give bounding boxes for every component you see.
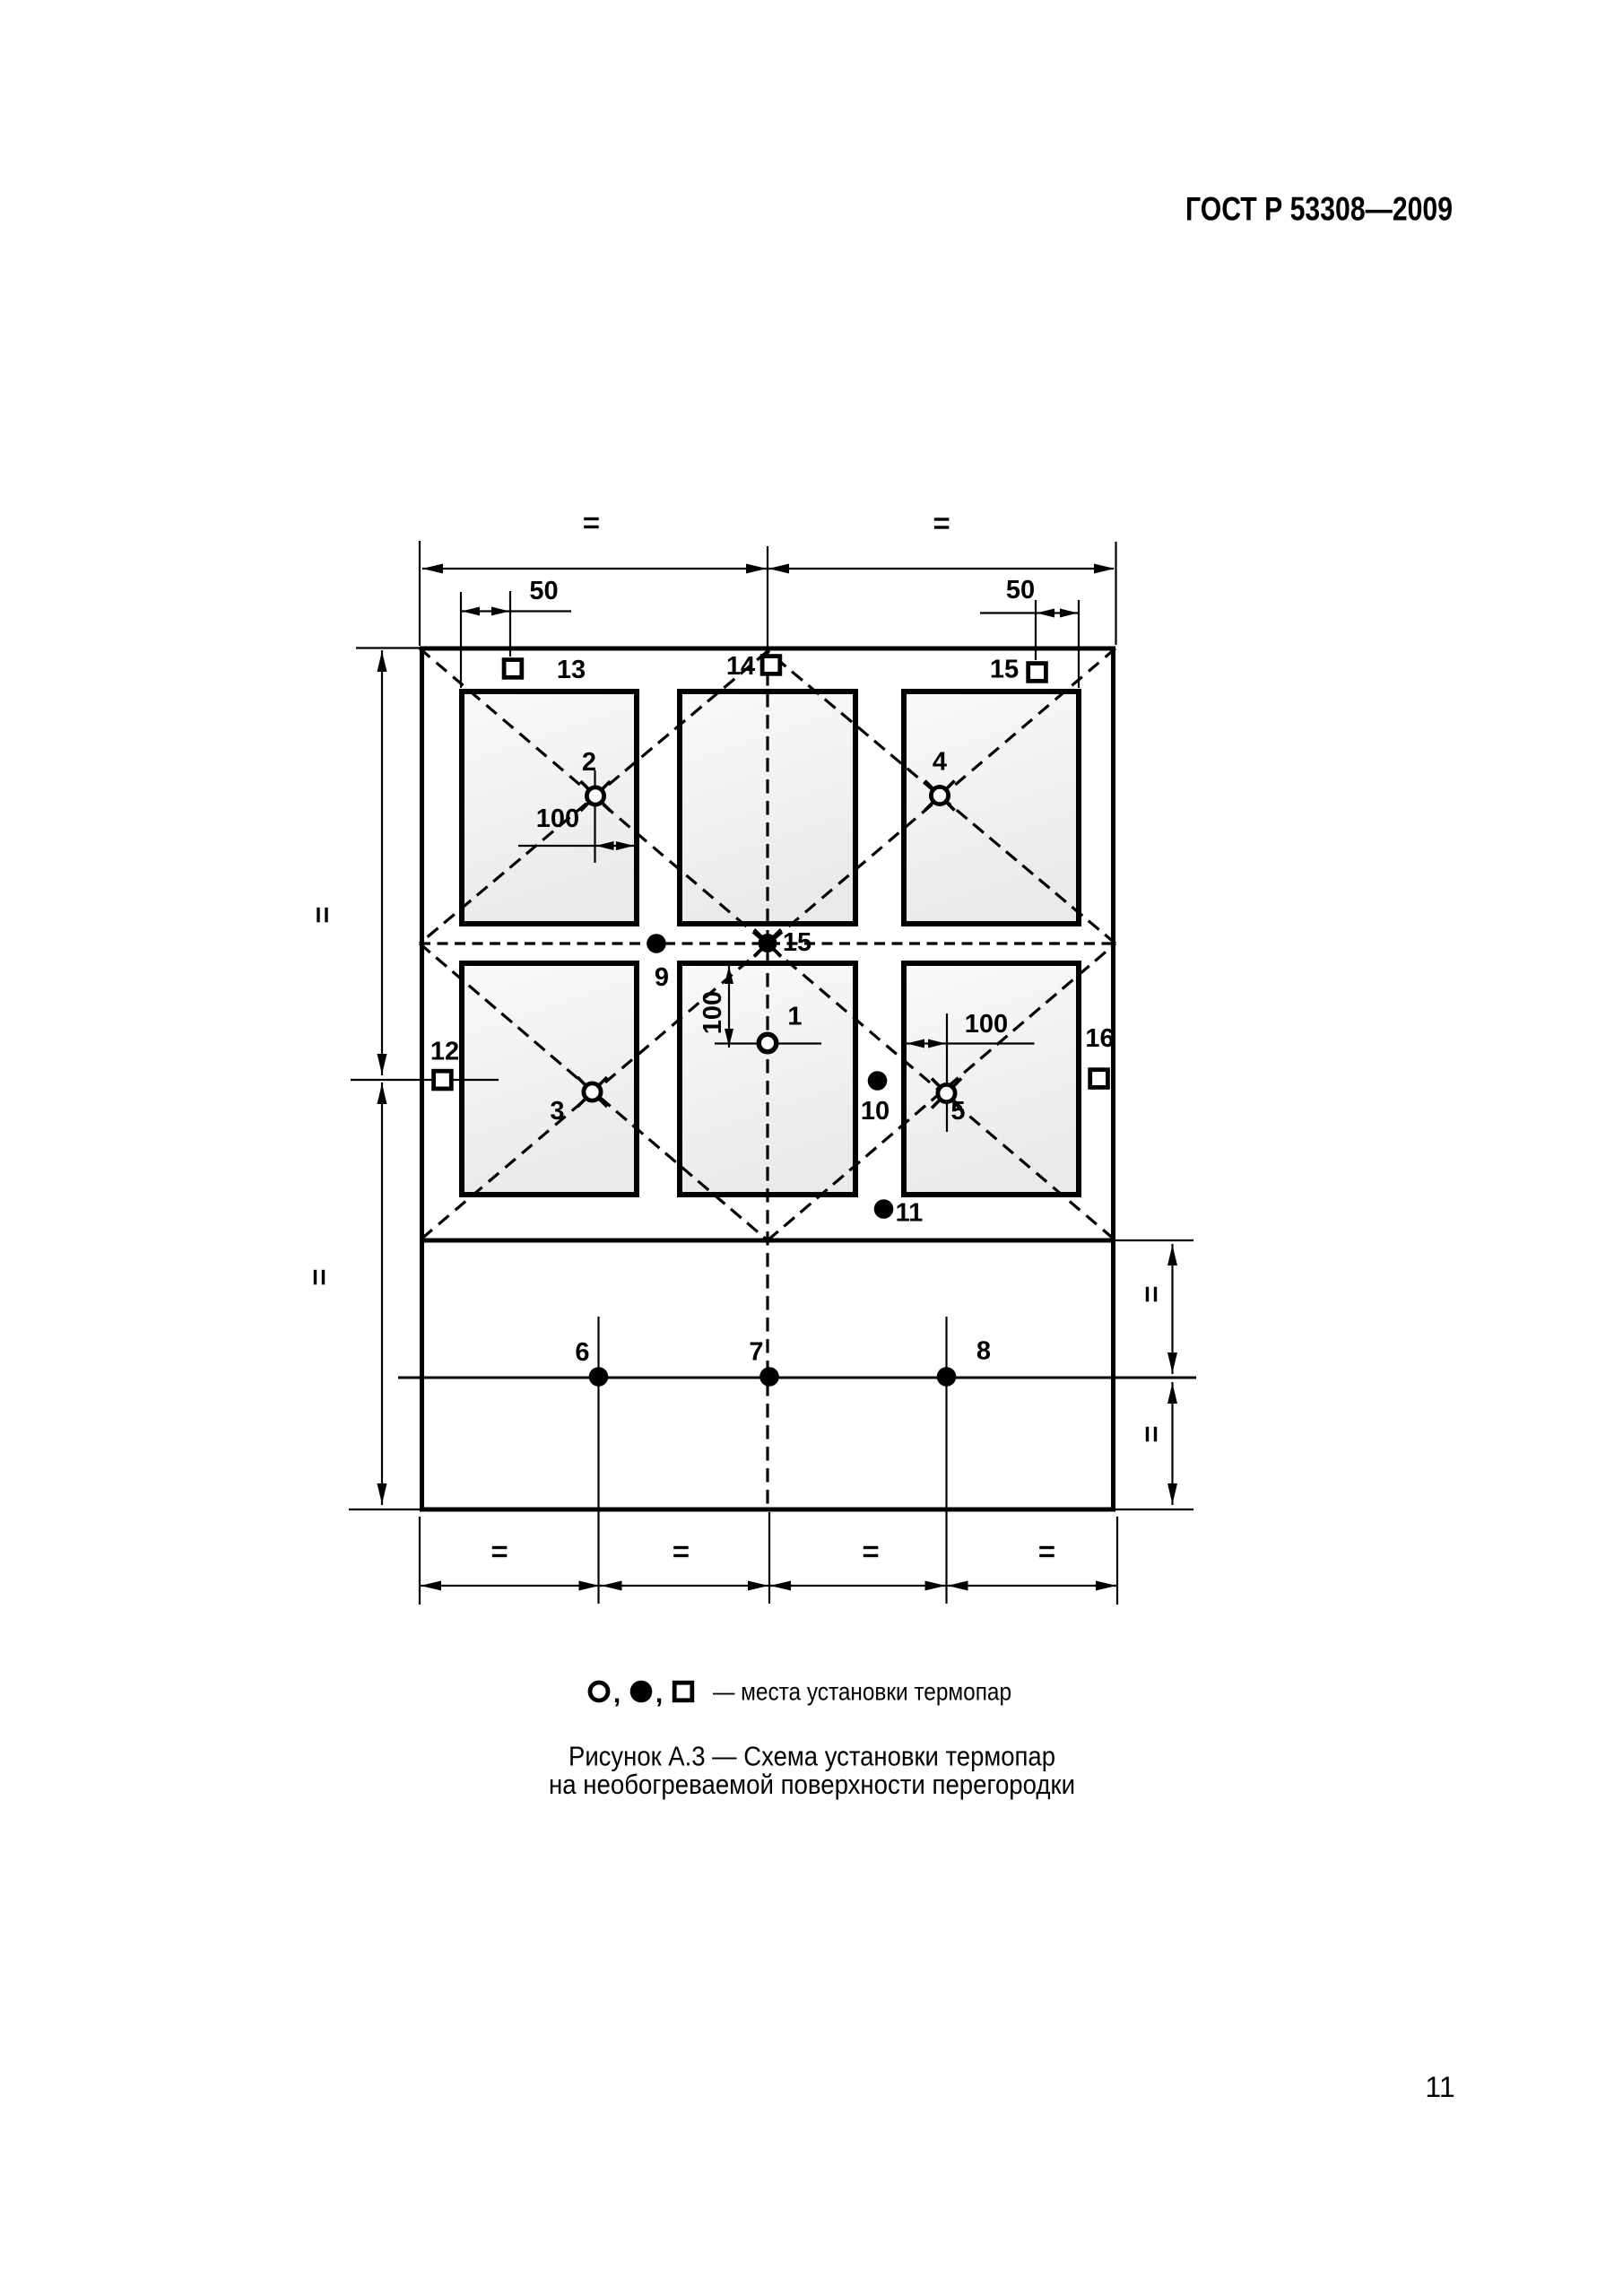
svg-text:Рисунок А.3 — Схема установки: Рисунок А.3 — Схема установки термопар (568, 1741, 1055, 1772)
svg-text:11: 11 (1425, 2071, 1454, 2103)
svg-text:на необогреваемой поверхности: на необогреваемой поверхности перегородк… (549, 1769, 1075, 1800)
svg-text:11: 11 (896, 1199, 924, 1228)
svg-text:5: 5 (950, 1097, 965, 1126)
svg-text:1: 1 (787, 1003, 802, 1031)
svg-text:15: 15 (990, 656, 1019, 684)
svg-text:15: 15 (783, 928, 811, 957)
svg-text:13: 13 (557, 656, 586, 684)
svg-text:7: 7 (749, 1338, 763, 1367)
svg-text:12: 12 (430, 1038, 459, 1066)
svg-text:100: 100 (699, 991, 727, 1034)
svg-text:9: 9 (655, 963, 669, 992)
svg-text:3: 3 (550, 1097, 564, 1126)
svg-text:14: 14 (726, 652, 755, 681)
svg-text:,: , (655, 1679, 663, 1709)
svg-text:50: 50 (1006, 576, 1035, 604)
svg-text:8: 8 (976, 1337, 991, 1366)
svg-text:4: 4 (933, 748, 947, 777)
svg-text:,: , (613, 1679, 621, 1709)
svg-text:6: 6 (575, 1338, 589, 1367)
svg-text:16: 16 (1085, 1024, 1114, 1053)
svg-text:ГОСТ Р 53308—2009: ГОСТ Р 53308—2009 (1185, 191, 1453, 228)
svg-text:2: 2 (582, 748, 596, 777)
svg-text:100: 100 (536, 804, 579, 833)
svg-text:— места установки термопар: — места установки термопар (713, 1678, 1011, 1706)
svg-text:50: 50 (529, 577, 558, 605)
svg-text:100: 100 (965, 1010, 1008, 1039)
svg-text:10: 10 (861, 1097, 890, 1126)
